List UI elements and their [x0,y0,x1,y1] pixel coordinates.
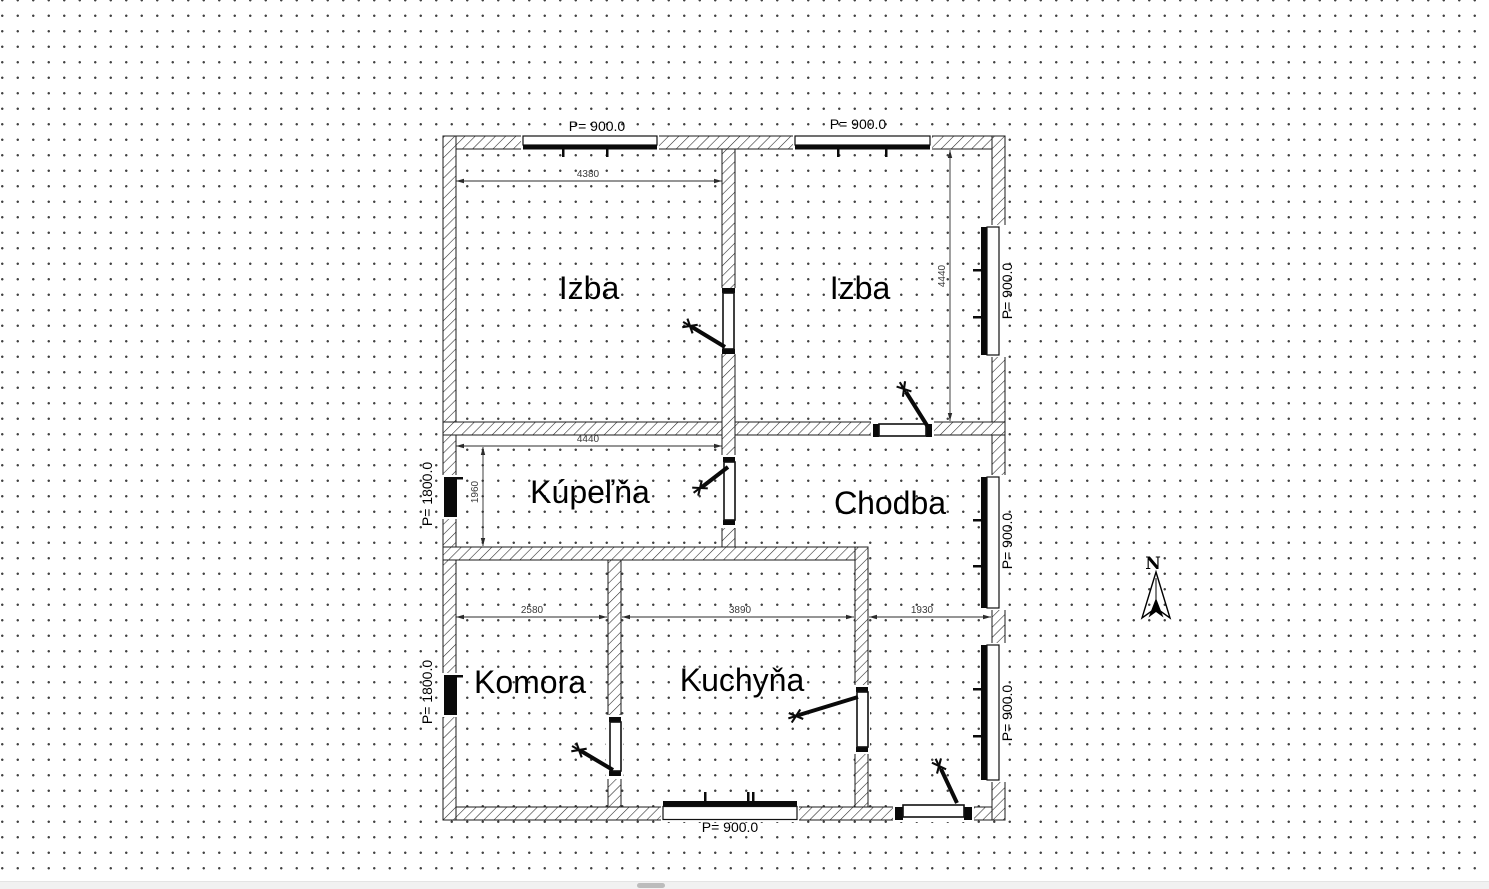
dim-text-4440-vertical: 4440 [937,264,948,287]
room-label-chodba: Chodba [834,485,946,521]
north-arrow: N [1142,554,1170,618]
window-label-left-lower: P= 1800.0 [419,660,435,724]
window-right-lower [973,645,999,780]
dimension-kitchen-width: 3890 [622,605,854,619]
drawing-canvas[interactable]: 4380 4440 4440 1960 2580 [0,0,1489,889]
window-label-right-upper: P= 900.0 [999,263,1015,320]
door-between-rooms [681,288,735,354]
dim-text-4440: 4440 [577,434,600,445]
window-label-top-right: P= 900.0 [830,116,887,132]
room-label-izba-left: Izba [559,270,620,306]
floor-plan-svg: 4380 4440 4440 1960 2580 [0,0,1489,889]
dimension-top-room-width: 4380 [456,169,722,183]
window-right-middle [973,477,999,608]
window-top-left [523,136,657,157]
window-label-bottom: P= 900.0 [702,819,759,835]
door-pantry [570,717,621,776]
door-entrance [895,757,972,820]
dim-text-3890: 3890 [729,605,752,616]
dimension-pantry-width: 2580 [456,605,607,619]
dimension-right-room-height: 4440 [937,150,952,421]
room-label-komora: Komora [474,664,586,700]
window-label-right-middle: P= 900.0 [999,513,1015,570]
room-label-izba-right: Izba [830,270,891,306]
dim-text-2580: 2580 [521,605,544,616]
window-label-top-left: P= 900.0 [569,118,626,134]
window-top-right [795,136,930,157]
scrollbar-thumb[interactable] [637,883,665,888]
window-bottom [663,792,797,820]
dim-text-1930: 1930 [911,605,934,616]
dim-text-4380: 4380 [577,169,600,180]
window-right-upper [973,227,999,355]
horizontal-scrollbar[interactable] [0,881,1489,889]
dimension-bathroom-height: 1960 [470,447,485,546]
room-label-kupelna: Kúpeľňa [530,474,650,510]
dim-text-1960: 1960 [470,480,481,503]
window-left-lower [444,675,463,715]
window-label-right-lower: P= 900.0 [999,685,1015,742]
window-label-left-upper: P= 1800.0 [419,462,435,526]
window-left-upper [444,477,463,517]
door-bathroom [691,457,735,525]
dimension-hall-width: 1930 [869,605,991,619]
dimension-bathroom-width: 4440 [456,434,722,448]
door-room-right-to-hall [873,380,932,437]
north-label: N [1145,554,1161,574]
room-label-kuchyna: Kuchyňa [680,662,805,698]
